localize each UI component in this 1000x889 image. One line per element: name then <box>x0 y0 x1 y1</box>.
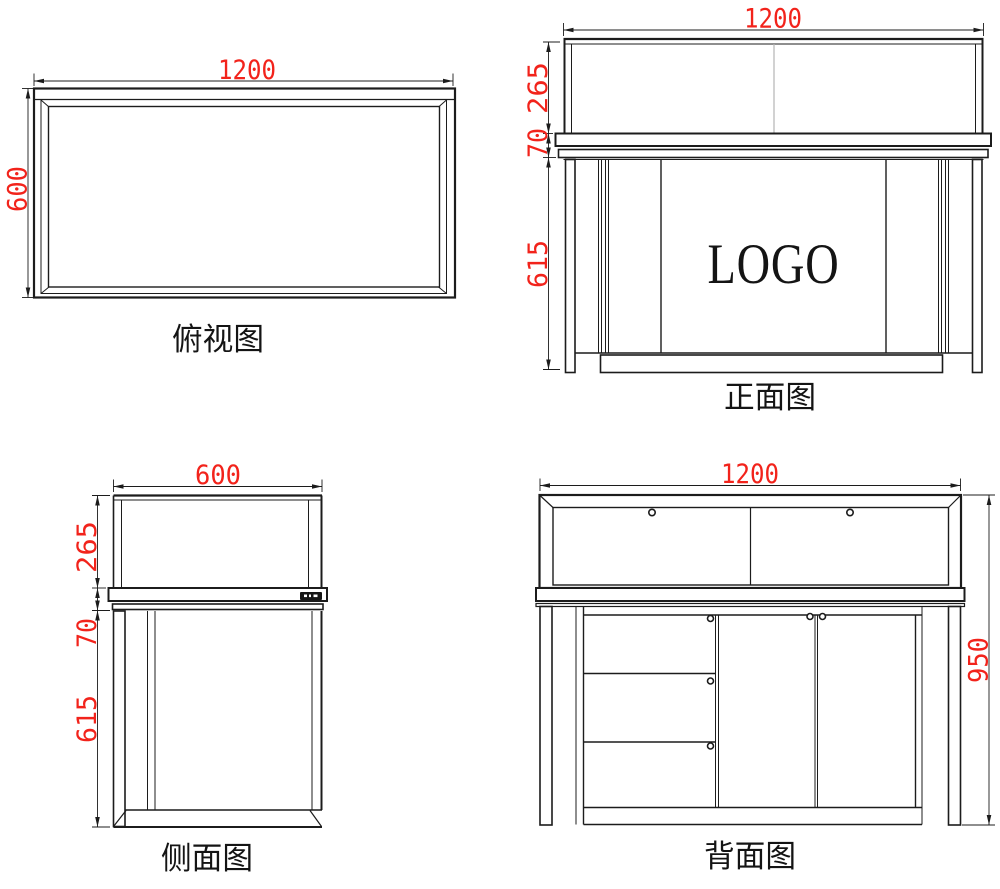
front-dim-70: 70 <box>523 128 554 158</box>
back-counter-band <box>536 588 965 607</box>
front-dim-615: 615 <box>523 240 554 288</box>
side-dim-615: 615 <box>72 695 103 743</box>
side-dim-70: 70 <box>72 618 103 648</box>
back-height-dimension: 950 <box>962 495 995 825</box>
side-width-label: 600 <box>195 460 241 491</box>
top-view-width-dimension: 1200 <box>34 55 453 86</box>
drawing-canvas: 1200 600 俯视图 <box>0 0 1000 889</box>
side-showcase-outline <box>114 496 323 589</box>
side-leg <box>114 611 126 827</box>
front-view-title: 正面图 <box>724 380 816 415</box>
top-view-depth-dimension: 600 <box>3 89 37 298</box>
side-counter-band <box>109 588 328 610</box>
front-right-leg <box>973 160 983 373</box>
back-base-cabinet <box>540 607 961 826</box>
top-view-outline <box>34 89 455 298</box>
top-width-label: 1200 <box>218 55 276 86</box>
front-showcase-outline <box>564 39 984 134</box>
front-view: LOGO 1200 265 70 615 正面图 <box>523 4 991 416</box>
top-view-title: 俯视图 <box>172 322 264 357</box>
door-knob <box>820 614 826 620</box>
back-showcase-outline <box>540 495 962 588</box>
back-width-dimension: 1200 <box>540 459 961 491</box>
sliding-door-knob <box>847 509 853 515</box>
front-left-leg <box>566 160 576 373</box>
drawer-knob <box>708 616 714 622</box>
sliding-door-knob <box>649 509 655 515</box>
front-width-label: 1200 <box>744 4 802 35</box>
drawer-knob <box>708 743 714 749</box>
door-knob <box>807 614 813 620</box>
back-width-label: 1200 <box>721 459 779 490</box>
logo-text: LOGO <box>708 233 840 296</box>
back-view-title: 背面图 <box>704 839 796 874</box>
drawer-knob <box>708 678 714 684</box>
back-right-leg <box>949 607 961 826</box>
front-dim-265: 265 <box>523 62 554 114</box>
back-left-leg <box>540 607 552 826</box>
side-view-title: 侧面图 <box>161 841 253 876</box>
side-view: 600 265 70 615 侧面图 <box>72 460 327 876</box>
front-plinth <box>601 355 943 373</box>
front-base-cabinet: LOGO <box>566 160 983 373</box>
front-width-dimension: 1200 <box>564 4 984 37</box>
back-view: 1200 950 背面图 <box>536 459 995 874</box>
top-depth-label: 600 <box>3 166 34 212</box>
side-dim-265: 265 <box>72 521 103 573</box>
top-view: 1200 600 俯视图 <box>3 55 456 357</box>
front-height-dimension-chain: 265 70 615 <box>523 42 560 370</box>
technical-drawing-page: 1200 600 俯视图 <box>0 0 1000 889</box>
back-dim-950: 950 <box>964 637 995 683</box>
front-counter-band <box>556 134 992 160</box>
side-height-dimension-chain: 265 70 615 <box>72 496 110 828</box>
side-width-dimension: 600 <box>114 460 323 492</box>
side-base-cabinet <box>114 611 323 827</box>
